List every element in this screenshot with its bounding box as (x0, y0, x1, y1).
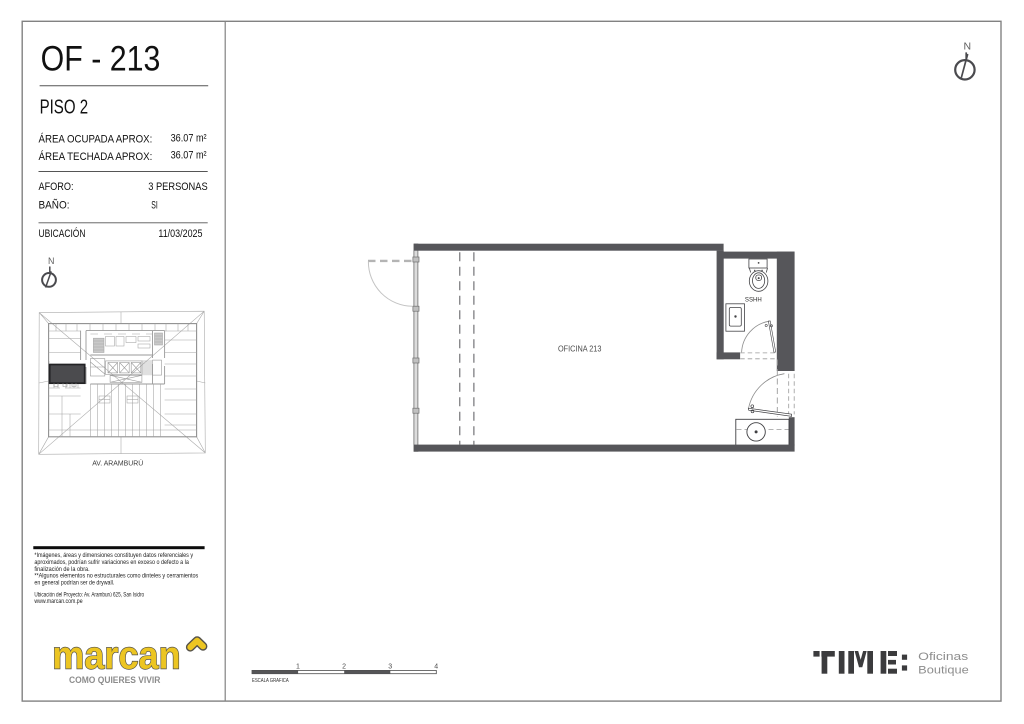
svg-text:UBICACIÓN: UBICACIÓN (39, 227, 86, 240)
svg-text:11/03/2025: 11/03/2025 (158, 228, 202, 240)
svg-text:ESCALA GRAFICA: ESCALA GRAFICA (252, 678, 289, 684)
svg-text:OFICINA 213: OFICINA 213 (558, 343, 602, 353)
svg-text:1: 1 (296, 663, 300, 670)
svg-text:BAÑO:: BAÑO: (39, 198, 70, 211)
svg-text:36.07 m²: 36.07 m² (171, 132, 207, 144)
svg-text:AFORO:: AFORO: (39, 181, 74, 193)
svg-text:OF - 213: OF - 213 (41, 39, 161, 78)
svg-text:PISO 2: PISO 2 (40, 96, 89, 119)
svg-text:www.marcan.com.pe: www.marcan.com.pe (34, 598, 83, 605)
svg-text:Boutique: Boutique (918, 664, 969, 676)
svg-text:en general podrían ser de dryw: en general podrían ser de drywall. (34, 579, 114, 586)
svg-text:marcan: marcan (52, 634, 180, 677)
svg-text:2: 2 (342, 663, 346, 670)
svg-text:COMO QUIERES VIVIR: COMO QUIERES VIVIR (69, 675, 161, 685)
svg-text:Oficinas: Oficinas (918, 651, 968, 663)
svg-text:3: 3 (388, 663, 392, 670)
svg-text:SI: SI (151, 199, 158, 211)
svg-text:AV. ARAMBURÚ: AV. ARAMBURÚ (92, 458, 143, 467)
svg-text:ÁREA TECHADA APROX:: ÁREA TECHADA APROX: (39, 150, 153, 163)
svg-text:N: N (964, 40, 972, 52)
svg-text:4: 4 (434, 663, 438, 670)
svg-text:36.07 m²: 36.07 m² (171, 150, 207, 162)
svg-text:N: N (48, 256, 54, 266)
svg-text:3 PERSONAS: 3 PERSONAS (148, 181, 208, 193)
svg-text:SSHH: SSHH (745, 297, 762, 304)
svg-text:ÁREA OCUPADA APROX:: ÁREA OCUPADA APROX: (39, 133, 153, 146)
